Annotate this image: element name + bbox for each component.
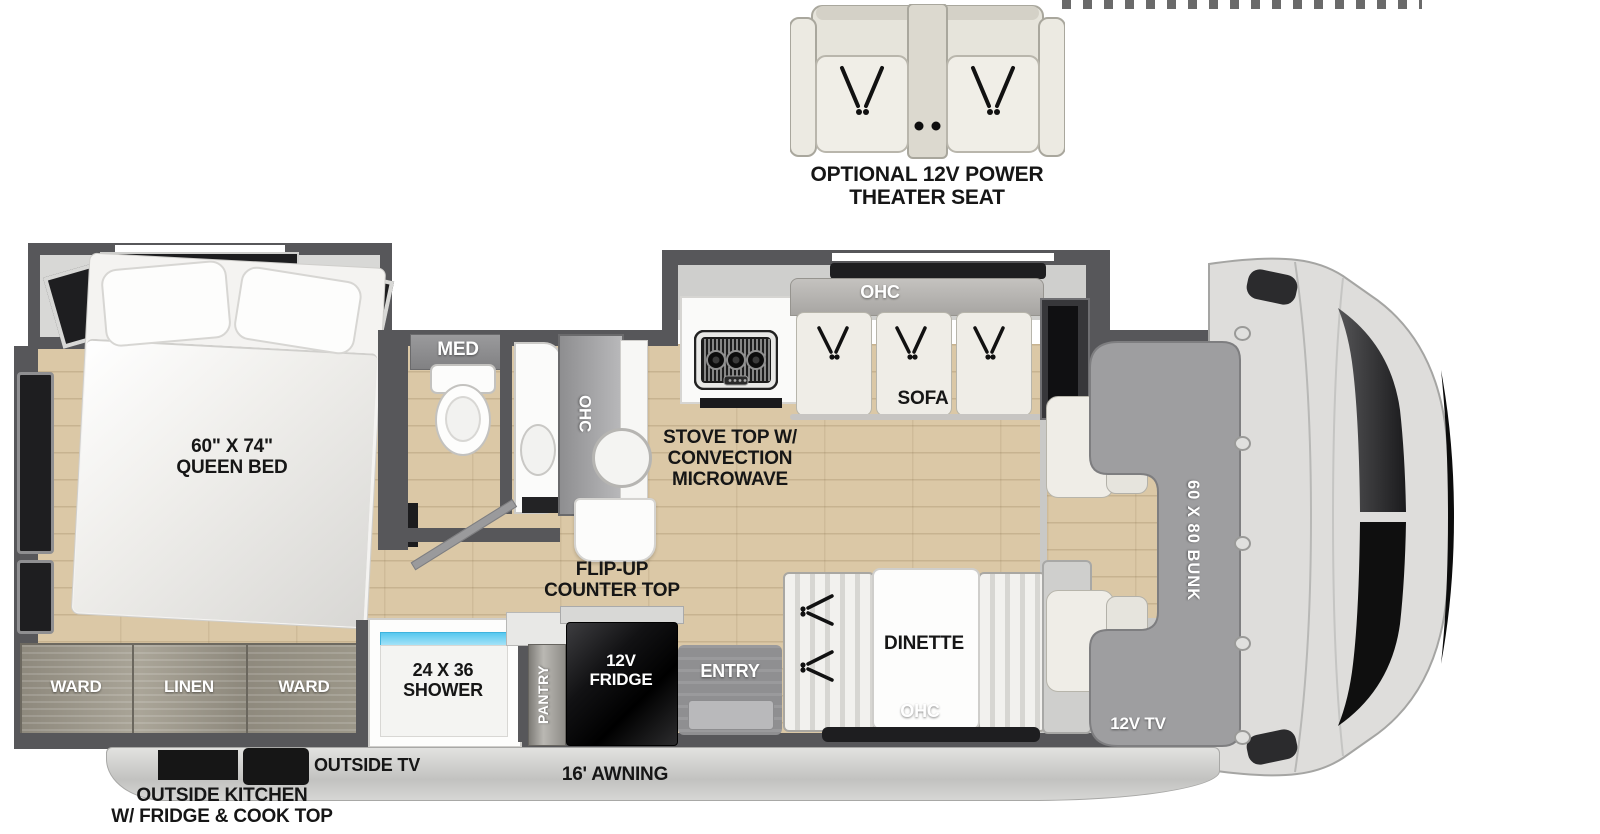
bed-pillow-left xyxy=(100,259,232,348)
rivet-1 xyxy=(1234,326,1251,341)
ward-right-label: WARD xyxy=(254,678,354,697)
med-cabinet-label: MED xyxy=(410,340,506,361)
bench-divider-1 xyxy=(132,645,134,735)
rear-window-upper xyxy=(17,372,54,554)
cab-tv-label: 12V TV xyxy=(1078,715,1198,734)
entry-step xyxy=(688,700,774,730)
outside-kitchen-label-line1: OUTSIDE KITCHEN xyxy=(92,786,352,807)
slideout-window xyxy=(830,263,1046,279)
queen-bed-label: 60" X 74" QUEEN BED xyxy=(122,437,342,479)
bedroom-slideout-window-gap xyxy=(115,245,285,252)
stove-label-line3: MICROWAVE xyxy=(650,470,810,491)
bed-duvet xyxy=(73,339,378,628)
sofa-ohc-label: OHC xyxy=(830,283,930,303)
flip-up-label-line1: FLIP-UP xyxy=(532,560,692,581)
bathroom-divider-wall xyxy=(500,334,512,514)
bath-ohc-label: OHC xyxy=(575,378,594,450)
flip-up-counter-label: FLIP-UP COUNTER TOP xyxy=(532,560,692,602)
ward-left-label: WARD xyxy=(26,678,126,697)
rivet-4 xyxy=(1234,636,1251,651)
shower-label-line1: 24 X 36 xyxy=(368,661,518,681)
queen-bed-label-line1: 60" X 74" xyxy=(122,437,342,458)
flip-up-counter xyxy=(574,498,656,562)
bench-divider-2 xyxy=(246,645,248,735)
sofa-recliner-mark-3 xyxy=(969,326,1009,362)
dinette-window xyxy=(822,727,1040,742)
sofa-front-edge xyxy=(790,414,1042,420)
dinette-recliner-mark-1 xyxy=(798,590,834,630)
entry-label: ENTRY xyxy=(678,662,782,682)
theater-seat-label: OPTIONAL 12V POWER THEATER SEAT xyxy=(788,163,1066,209)
outside-kitchen-compartment xyxy=(158,750,238,780)
stove-label-line2: CONVECTION xyxy=(650,449,810,470)
cropped-text-artifact xyxy=(1062,0,1422,9)
linen-label: LINEN xyxy=(139,678,239,697)
theater-seat-label-line1: OPTIONAL 12V POWER xyxy=(788,163,1066,186)
fridge-label-line2: FRIDGE xyxy=(566,671,676,690)
kitchen-counter-base xyxy=(700,398,782,408)
bedroom-bath-divider-wall xyxy=(378,330,408,550)
slideout-window-gap xyxy=(832,253,1054,261)
sofa-recliner-mark-2 xyxy=(891,326,931,362)
rivet-5 xyxy=(1234,730,1251,745)
toilet-bowl-inner xyxy=(445,396,481,442)
theater-seat-illustration xyxy=(790,4,1065,162)
fridge-label-line1: 12V xyxy=(566,652,676,671)
stove-label-line1: STOVE TOP W/ xyxy=(650,428,810,449)
kitchen-slideout-left-wall xyxy=(662,250,678,346)
stove-top xyxy=(694,330,778,390)
shower-label: 24 X 36 SHOWER xyxy=(368,661,518,701)
rv-floorplan-canvas: OPTIONAL 12V POWER THEATER SEAT 60" X 74… xyxy=(0,0,1600,834)
outside-tv-compartment xyxy=(243,748,309,785)
outside-kitchen-label: OUTSIDE KITCHEN W/ FRIDGE & COOK TOP xyxy=(92,786,352,828)
sofa-label: SOFA xyxy=(868,389,978,410)
dinette-label: DINETTE xyxy=(854,634,994,655)
stove-label: STOVE TOP W/ CONVECTION MICROWAVE xyxy=(650,428,810,491)
outside-tv-label: OUTSIDE TV xyxy=(314,756,444,776)
dinette-ohc-label: OHC xyxy=(845,702,995,722)
pantry-label: PANTRY xyxy=(536,652,551,738)
round-sink xyxy=(592,428,652,488)
bunk-over-cab xyxy=(1085,338,1250,750)
rear-window-lower xyxy=(17,560,54,634)
awning-label: 16' AWNING xyxy=(540,765,690,786)
vanity-base-dark xyxy=(522,497,558,513)
rivet-2 xyxy=(1234,436,1251,451)
theater-seat-label-line2: THEATER SEAT xyxy=(788,186,1066,209)
rivet-3 xyxy=(1234,536,1251,551)
sofa-recliner-mark-1 xyxy=(813,326,853,362)
fridge-label: 12V FRIDGE xyxy=(566,652,676,689)
flip-up-label-line2: COUNTER TOP xyxy=(532,581,692,602)
queen-bed-label-line2: QUEEN BED xyxy=(122,458,342,479)
vanity-sink xyxy=(520,424,556,476)
toilet xyxy=(428,364,494,456)
front-tv-panel xyxy=(1048,306,1078,406)
bunk-label: 60 X 80 BUNK xyxy=(1184,452,1202,630)
dinette-recliner-mark-2 xyxy=(798,646,834,686)
shower-label-line2: SHOWER xyxy=(368,681,518,701)
outside-kitchen-label-line2: W/ FRIDGE & COOK TOP xyxy=(92,807,352,828)
